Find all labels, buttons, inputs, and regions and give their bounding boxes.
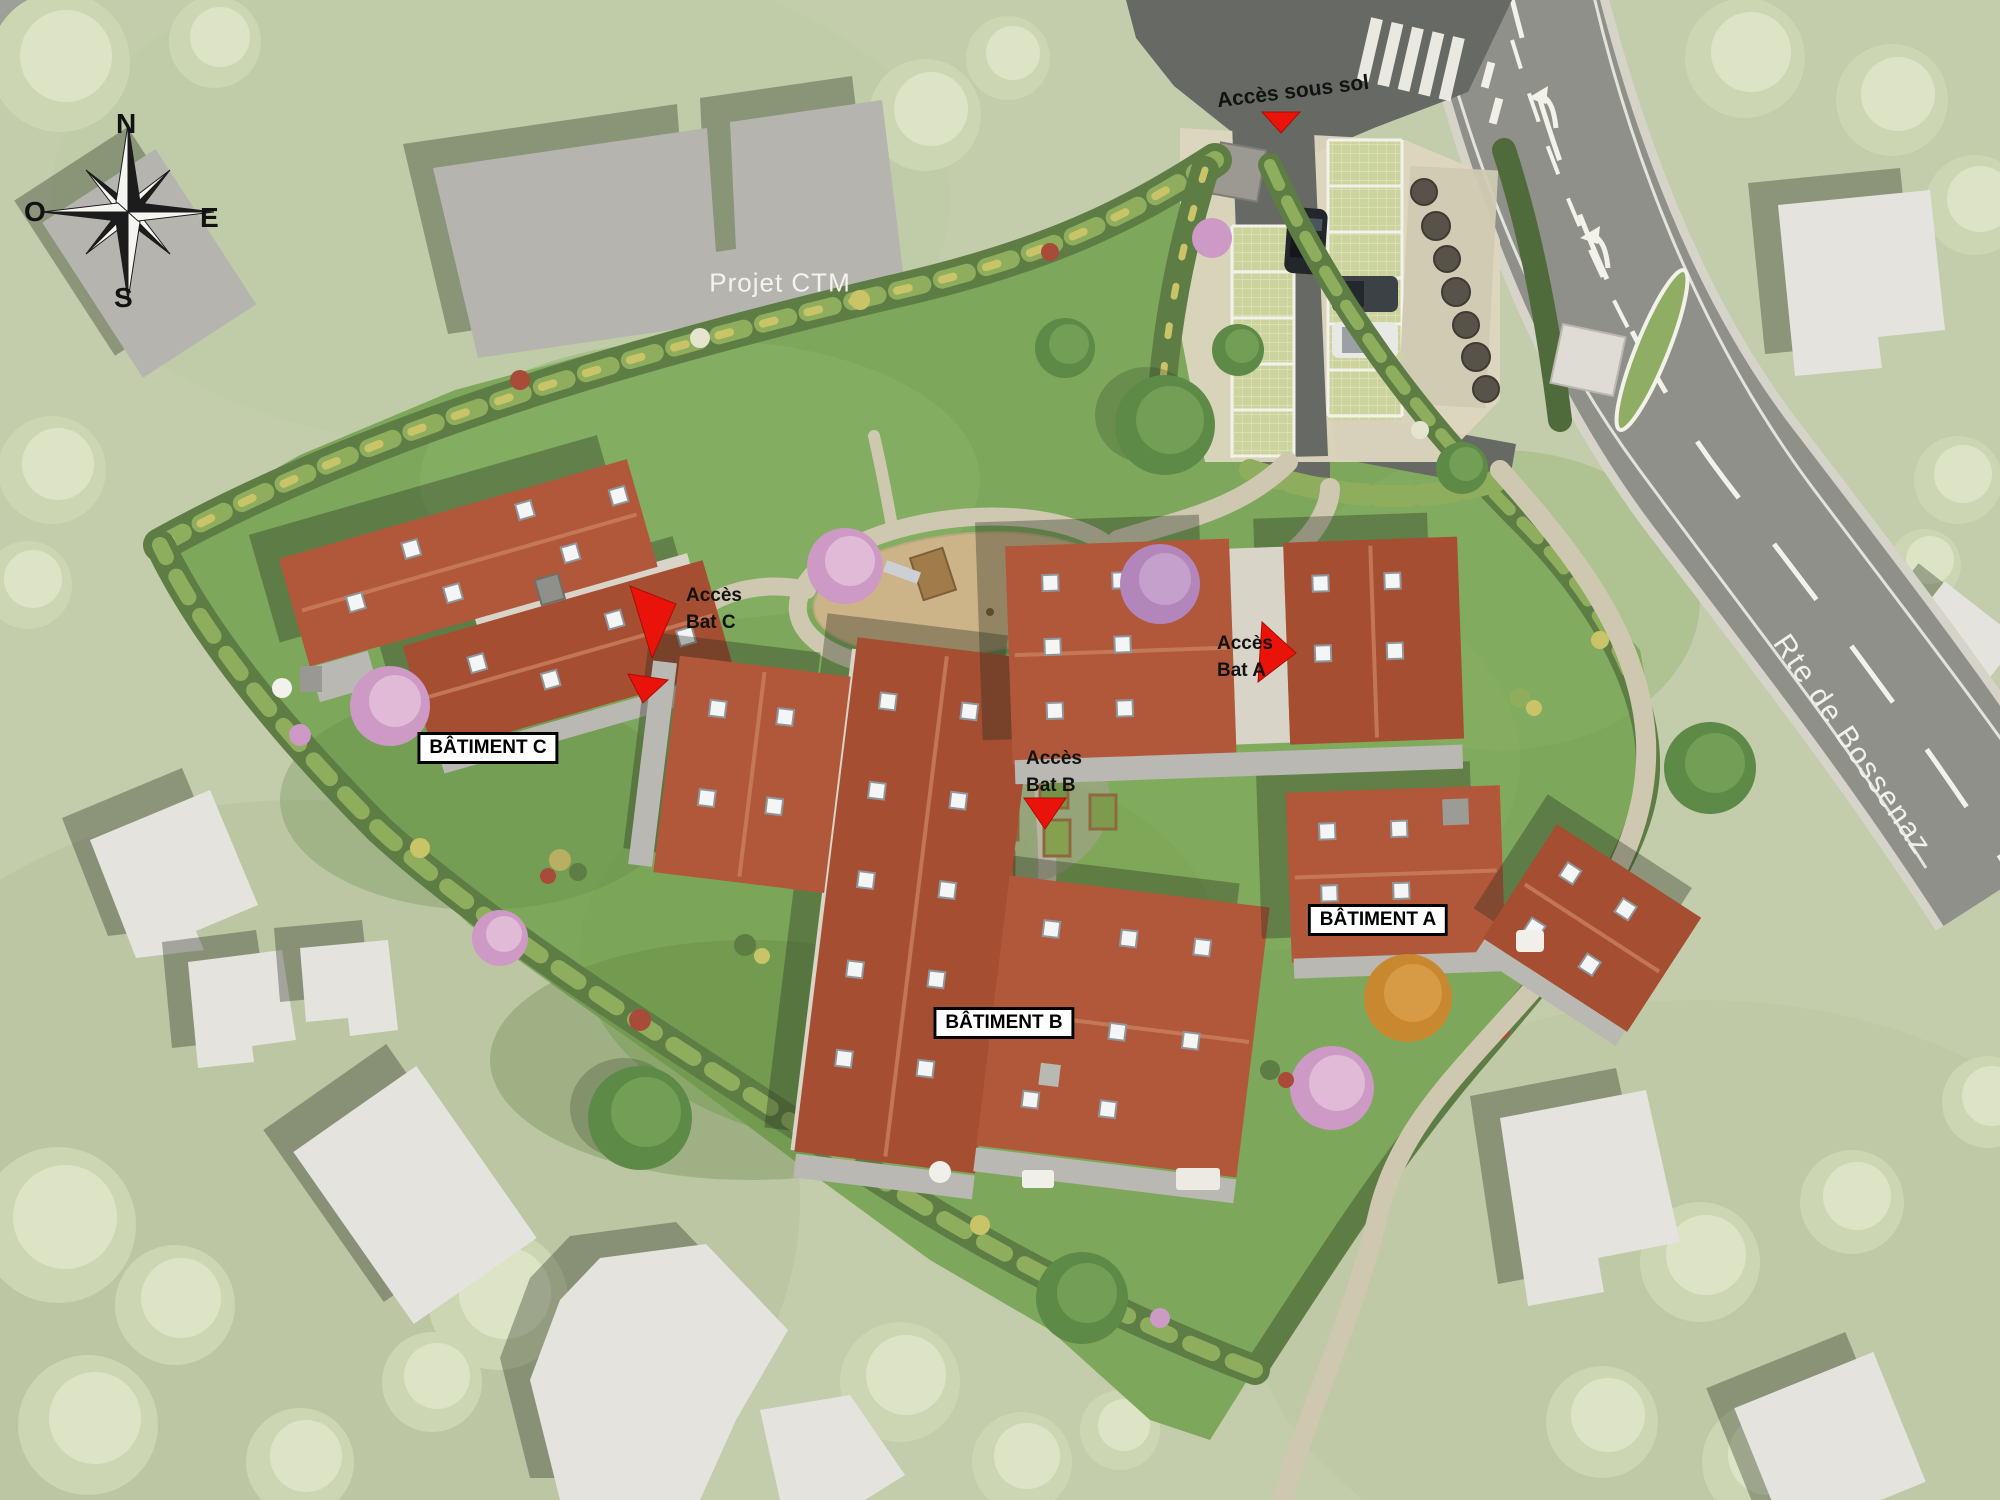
- acces-bat-c-line2: Bat C: [686, 609, 742, 636]
- compass-north-label: N: [116, 108, 136, 140]
- flowering-tree: [1120, 544, 1200, 624]
- shrub-mounds: [1398, 166, 1499, 408]
- site-plan: N O E S Projet CTM Accès sous sol Accès …: [0, 0, 2000, 1500]
- acces-bat-b-label: Accès Bat B: [1026, 745, 1082, 799]
- acces-bat-b-line2: Bat B: [1026, 772, 1082, 799]
- roof-hatch: [1038, 1063, 1061, 1087]
- flowering-tree: [807, 528, 883, 604]
- patio-table: [300, 666, 322, 692]
- acces-bat-a-label: Accès Bat A: [1217, 630, 1273, 684]
- tree: [1212, 324, 1264, 376]
- compass-east-label: E: [200, 202, 219, 234]
- acces-bat-a-line2: Bat A: [1217, 657, 1273, 684]
- batiment-c-label: BÂTIMENT C: [417, 732, 558, 764]
- batiment-a-label: BÂTIMENT A: [1308, 904, 1448, 936]
- flowering-tree: [1290, 1046, 1374, 1130]
- acces-bat-c-label: Accès Bat C: [686, 582, 742, 636]
- parasol: [272, 678, 292, 698]
- roof-hatch: [1442, 798, 1469, 825]
- garden-table: [1516, 930, 1544, 952]
- site-plan-graphic: [0, 0, 2000, 1500]
- tree: [1436, 442, 1488, 494]
- autumn-tree: [1364, 954, 1452, 1042]
- flowering-tree: [472, 910, 528, 966]
- acces-bat-a-line1: Accès: [1217, 630, 1273, 657]
- acces-bat-c-line1: Accès: [686, 582, 742, 609]
- tree: [1036, 1252, 1128, 1344]
- batiment-b-label: BÂTIMENT B: [933, 1007, 1074, 1039]
- utility-cabin: [1550, 324, 1625, 396]
- compass-south-label: S: [114, 282, 133, 314]
- compass-west-label: O: [24, 196, 46, 228]
- tree: [1035, 318, 1095, 378]
- projet-ctm-label: Projet CTM: [709, 268, 850, 299]
- tree: [1664, 722, 1756, 814]
- acces-bat-b-line1: Accès: [1026, 745, 1082, 772]
- flowering-tree: [1192, 218, 1232, 258]
